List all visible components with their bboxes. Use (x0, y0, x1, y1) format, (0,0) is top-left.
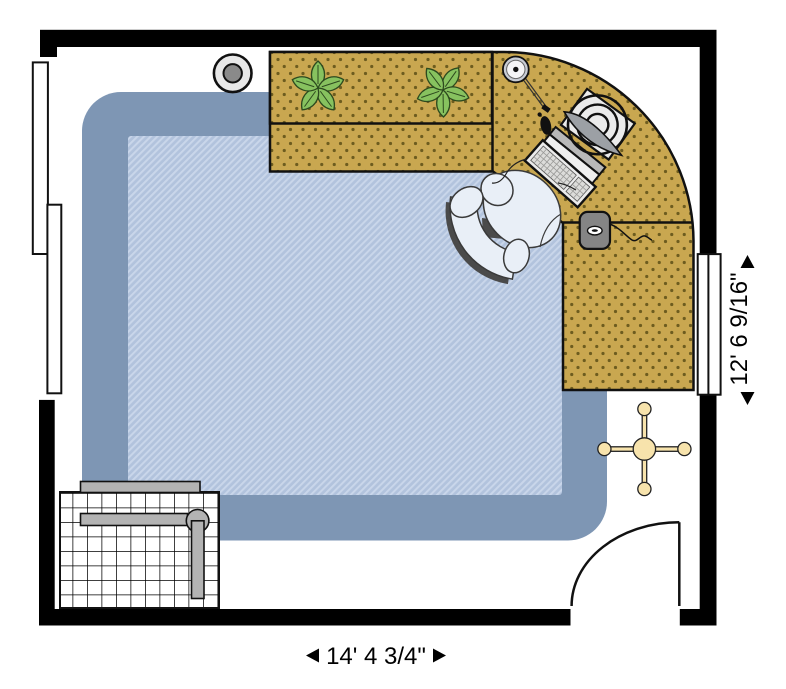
svg-text:14' 4 3/4": 14' 4 3/4" (326, 643, 426, 670)
svg-text:12' 6 9/16": 12' 6 9/16" (726, 272, 753, 385)
